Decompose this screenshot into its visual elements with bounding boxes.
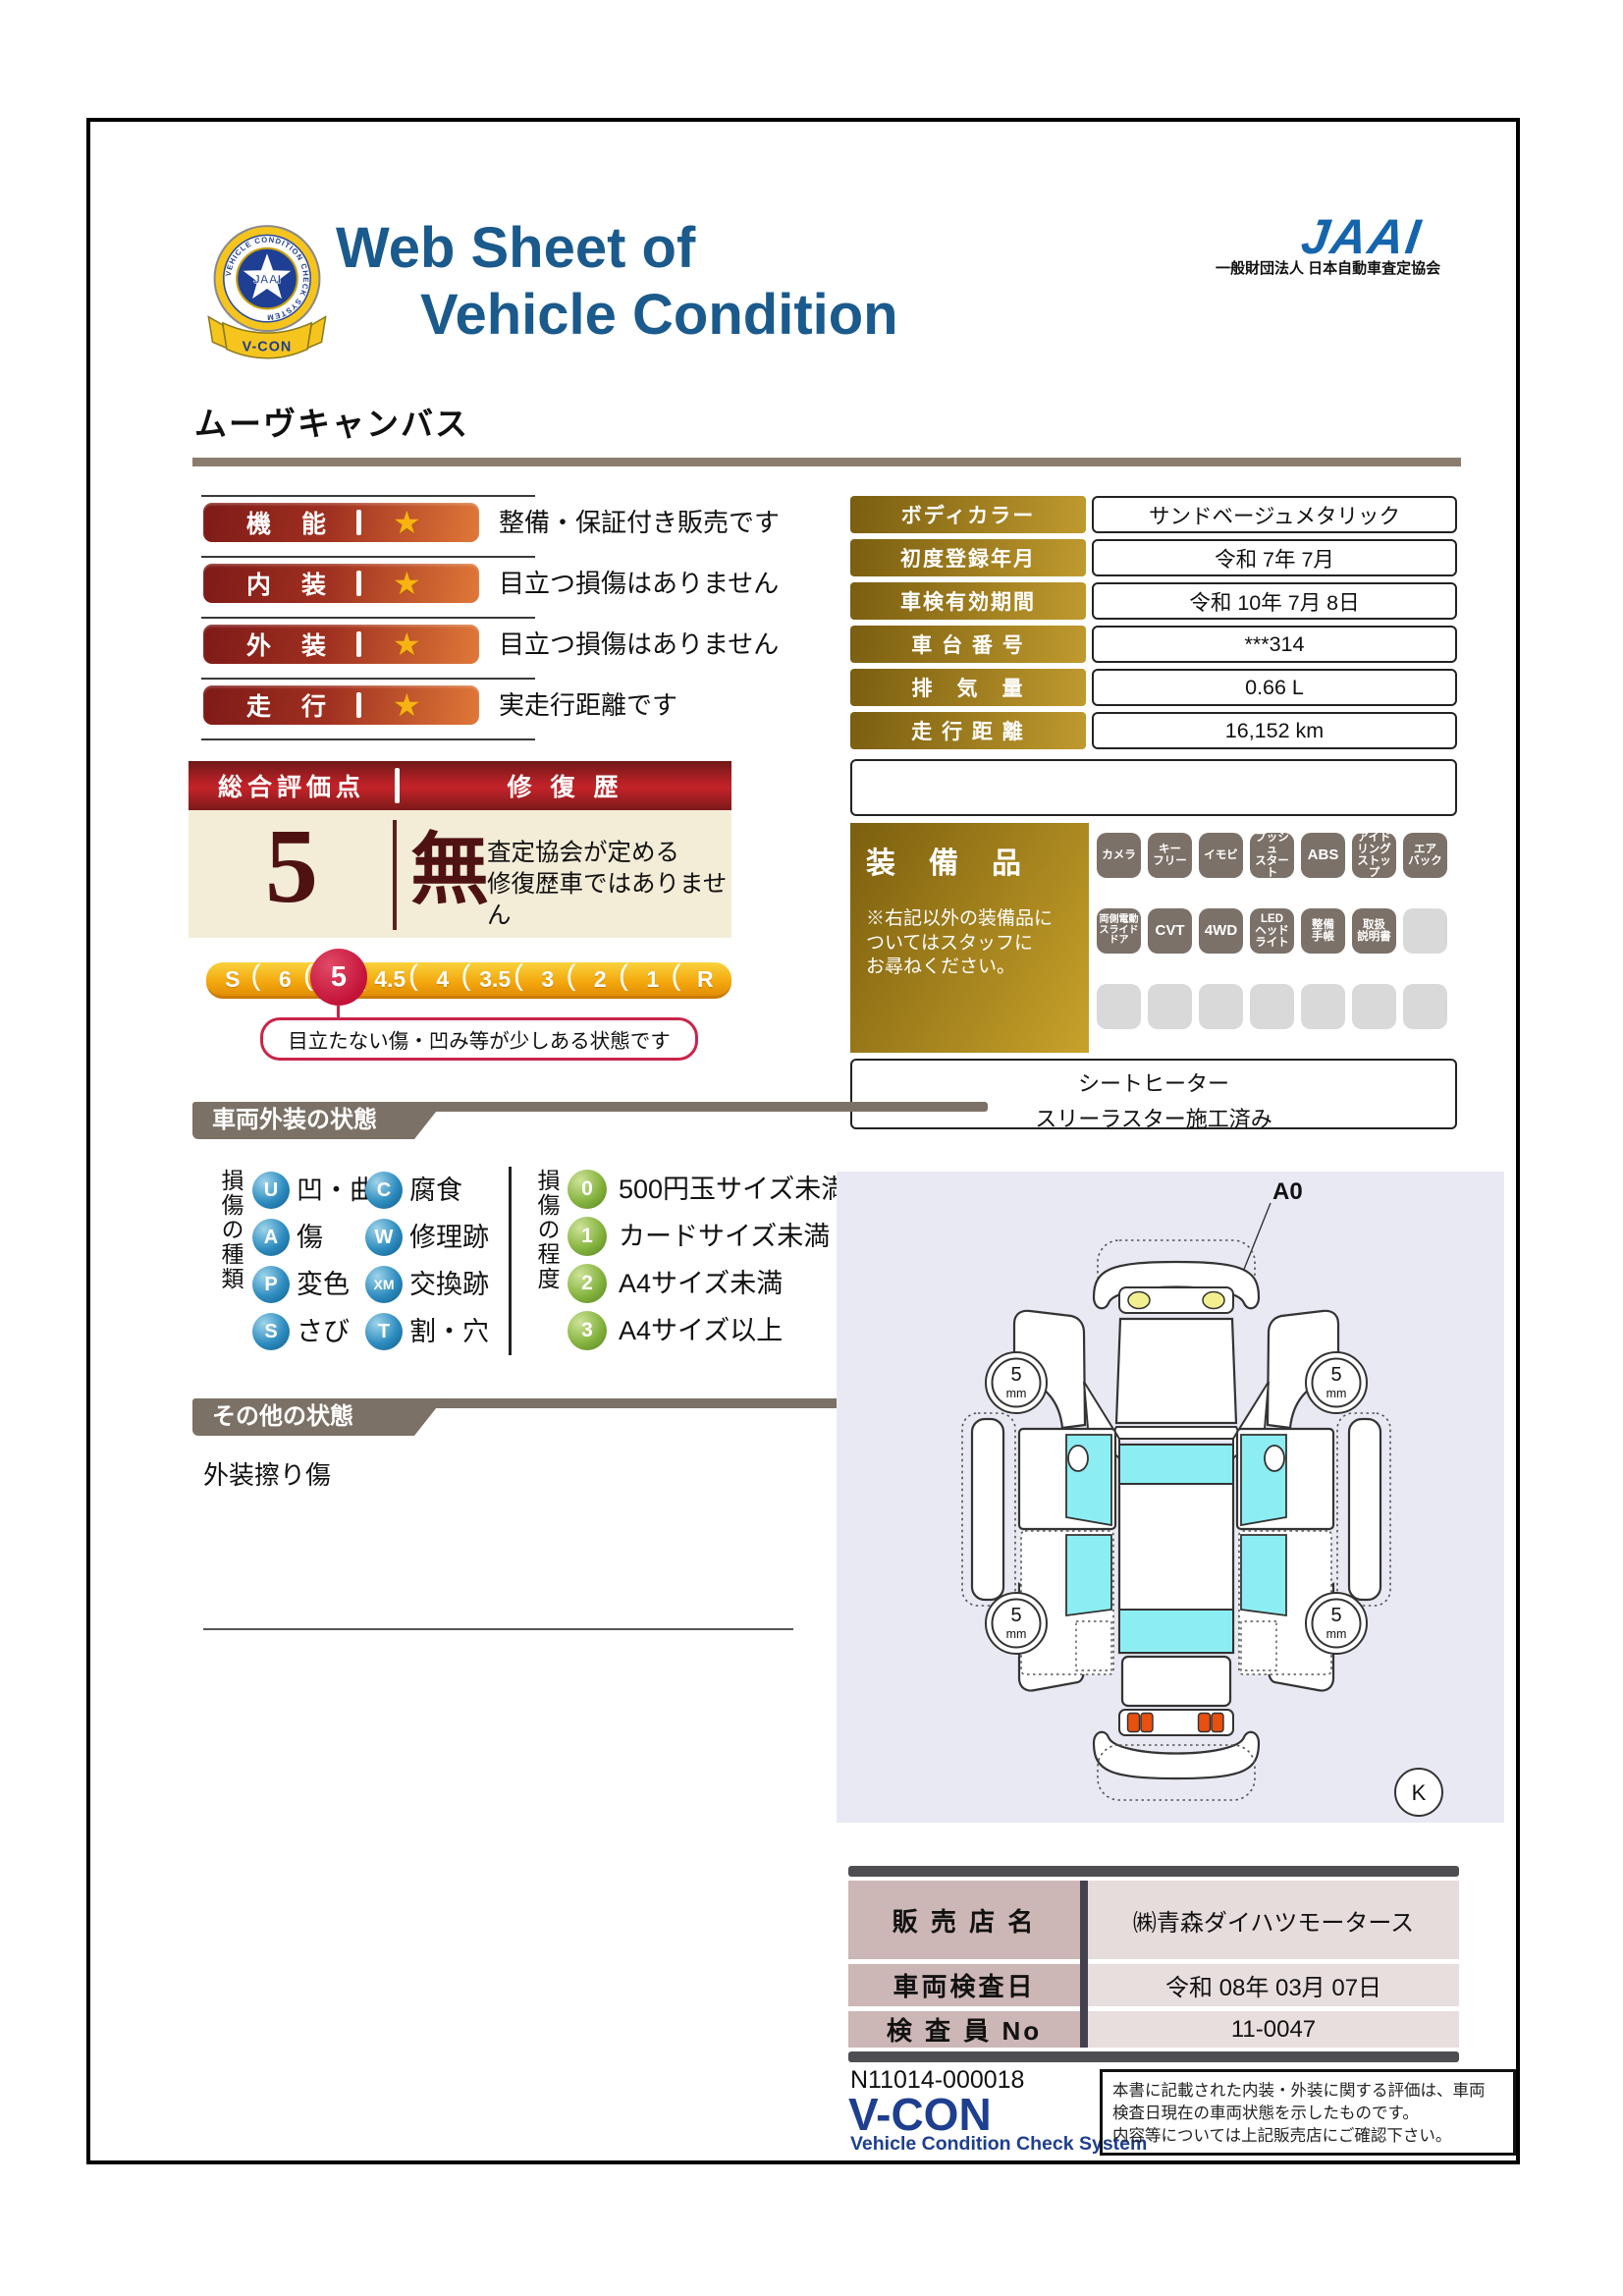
hood-shape bbox=[1116, 1319, 1236, 1423]
wheel-value: 5 bbox=[1330, 1364, 1341, 1386]
overall-header-right: 修 復 歴 bbox=[400, 768, 731, 803]
equipment-badge: 4WD bbox=[1199, 908, 1243, 954]
equipment-badge: 取扱 説明書 bbox=[1352, 908, 1396, 954]
legend-divider bbox=[509, 1167, 512, 1355]
rating-badge-exterior: 外 装 ★ bbox=[203, 625, 479, 664]
damage-kind-code: A bbox=[252, 1219, 290, 1256]
rating-separator bbox=[356, 631, 361, 657]
equipment-badge: LED ヘッド ライト bbox=[1250, 908, 1294, 954]
damage-kind-label: 凹・曲 bbox=[297, 1172, 376, 1209]
rating-separator bbox=[356, 692, 361, 718]
damage-kind-code: S bbox=[252, 1313, 290, 1350]
info-value: 0.66 L bbox=[1092, 669, 1457, 706]
wheel-value: 5 bbox=[1010, 1364, 1021, 1386]
disclaimer-box: 本書に記載された内装・外装に関する評価は、車両 検査日現在の車両状態を示したもの… bbox=[1100, 2069, 1516, 2156]
rating-description: 実走行距離です bbox=[499, 685, 677, 725]
equipment-badge-empty bbox=[1352, 984, 1396, 1029]
wheel-unit: mm bbox=[1006, 1627, 1027, 1641]
taillight bbox=[1199, 1714, 1211, 1732]
info-label: 初度登録年月 bbox=[850, 539, 1086, 576]
wheel-value: 5 bbox=[1010, 1605, 1021, 1626]
damage-kind-label: 傷 bbox=[297, 1219, 323, 1256]
damage-kind-label: 腐食 bbox=[409, 1172, 462, 1209]
repair-note-line2: 修復歴車ではありません bbox=[487, 869, 731, 932]
damage-kind-label: 変色 bbox=[297, 1266, 350, 1303]
dealer-value: 11-0047 bbox=[1088, 2011, 1459, 2048]
equipment-badge: 整備 手帳 bbox=[1301, 908, 1345, 954]
equipment-extra-line: シートヒーター bbox=[852, 1066, 1455, 1098]
info-value: 16,152 km bbox=[1092, 712, 1457, 749]
other-section-title: その他の状態 bbox=[192, 1398, 444, 1436]
corner-mark: K bbox=[1395, 1769, 1442, 1816]
wheel-unit: mm bbox=[1006, 1387, 1027, 1400]
taillight bbox=[1141, 1714, 1153, 1732]
damage-degree-header: 損傷の程度 bbox=[530, 1169, 564, 1361]
damage-kind-code: P bbox=[252, 1266, 290, 1303]
star-icon: ★ bbox=[393, 504, 421, 541]
info-value: 令和 7年 7月 bbox=[1092, 539, 1457, 576]
damage-degree-label: 500円玉サイズ未満 bbox=[619, 1170, 847, 1209]
wheel-unit: mm bbox=[1326, 1627, 1347, 1641]
damage-kind-code: T bbox=[365, 1313, 403, 1350]
headlight-right bbox=[1203, 1292, 1224, 1309]
damage-degree-code: 2 bbox=[568, 1264, 607, 1303]
dealer-value: ㈱青森ダイハツモータース bbox=[1088, 1881, 1459, 1959]
car-damage-diagram: A0 bbox=[837, 1172, 1504, 1823]
sheet-title-line1: Web Sheet of bbox=[336, 220, 695, 277]
exterior-section-title: 車両外装の状態 bbox=[192, 1102, 444, 1139]
diagram-annotation: A0 bbox=[1272, 1178, 1303, 1205]
damage-degree-code: 0 bbox=[568, 1170, 607, 1209]
wheel-rear-left: 5 mm bbox=[986, 1593, 1047, 1654]
equipment-badge: カメラ bbox=[1097, 833, 1141, 878]
equipment-badge-empty bbox=[1403, 984, 1447, 1029]
overall-header-left: 総合評価点 bbox=[189, 768, 395, 803]
rating-description: 整備・保証付き販売です bbox=[499, 503, 780, 542]
info-value: サンドベージュメタリック bbox=[1092, 496, 1457, 533]
damage-degree-code: 1 bbox=[568, 1217, 607, 1256]
rating-description: 目立つ損傷はありません bbox=[499, 625, 779, 664]
equipment-badge: CVT bbox=[1148, 908, 1192, 954]
star-icon: ★ bbox=[393, 565, 421, 602]
damage-kind-code: W bbox=[365, 1219, 403, 1256]
rating-description: 目立つ損傷はありません bbox=[499, 564, 779, 603]
vehicle-name: ムーヴキャンバス bbox=[194, 398, 469, 445]
tailgate-shape bbox=[1122, 1657, 1230, 1706]
equipment-badge: 両側電動 スライド ドア bbox=[1097, 908, 1141, 954]
damage-degree-label: A4サイズ未満 bbox=[619, 1264, 783, 1303]
overall-divider bbox=[393, 820, 397, 930]
damage-kind-label: さび bbox=[297, 1313, 350, 1350]
header-divider bbox=[192, 458, 1461, 466]
taillight bbox=[1128, 1714, 1140, 1732]
overall-header: 総合評価点 修 復 歴 bbox=[189, 761, 731, 810]
equipment-extra-box: シートヒーター スリーラスター施工済み bbox=[850, 1059, 1457, 1129]
info-value: 令和 10年 7月 8日 bbox=[1092, 582, 1457, 620]
taillight bbox=[1212, 1714, 1223, 1732]
dealer-label: 販 売 店 名 bbox=[848, 1881, 1080, 1959]
wheel-front-right: 5 mm bbox=[1306, 1352, 1367, 1413]
equipment-badge-empty bbox=[1403, 908, 1447, 954]
dealer-table-top-bar bbox=[848, 1866, 1459, 1877]
equipment-badge-empty bbox=[1148, 984, 1192, 1029]
equipment-title: 装 備 品 bbox=[866, 839, 1089, 882]
damage-degree-label: カードサイズ未満 bbox=[619, 1217, 830, 1256]
vcon-badge-logo: VEHICLE CONDITION CHECK SYSTEM JAAI V-CO… bbox=[206, 221, 328, 366]
rating-divider bbox=[201, 495, 535, 497]
scale-item: R bbox=[679, 962, 732, 996]
wheel-unit: mm bbox=[1326, 1387, 1347, 1400]
vcon-footer-logo: V-CON bbox=[848, 2092, 992, 2137]
other-condition-note: 外装擦り傷 bbox=[203, 1455, 331, 1492]
star-icon: ★ bbox=[393, 626, 421, 663]
overall-score: 5 bbox=[189, 806, 395, 928]
rating-label: 外 装 bbox=[246, 627, 329, 662]
dealer-value: 令和 08年 03月 07日 bbox=[1088, 1964, 1459, 2006]
damage-degree-code: 3 bbox=[568, 1311, 607, 1350]
equipment-badge-empty bbox=[1301, 984, 1345, 1029]
damage-kind-header: 損傷の種類 bbox=[214, 1169, 247, 1361]
equipment-badge: ABS bbox=[1301, 833, 1345, 878]
info-label: ボディカラー bbox=[850, 496, 1086, 533]
equipment-badge-empty bbox=[1199, 984, 1243, 1029]
repair-history-flag: 無 bbox=[410, 832, 489, 910]
dealer-table-bottom-bar bbox=[848, 2051, 1459, 2062]
headlight-left bbox=[1128, 1292, 1150, 1309]
rating-label: 機 能 bbox=[246, 505, 329, 540]
equipment-note: ※右記以外の装備品に ついてはスタッフに お尋ねください。 bbox=[866, 907, 1089, 980]
info-label: 排 気 量 bbox=[850, 669, 1086, 706]
equipment-panel-label: 装 備 品 ※右記以外の装備品に ついてはスタッフに お尋ねください。 bbox=[850, 823, 1089, 1053]
dealer-table-divider bbox=[1080, 1881, 1088, 2048]
damage-kind-code: XM bbox=[365, 1266, 403, 1303]
other-section-line bbox=[203, 1628, 793, 1630]
rating-divider bbox=[201, 678, 535, 680]
rating-badge-function: 機 能 ★ bbox=[203, 503, 479, 542]
wheel-front-left: 5 mm bbox=[986, 1352, 1047, 1413]
equipment-badge-empty bbox=[1097, 984, 1141, 1029]
jaai-logo-subtitle: 一般財団法人 日本自動車査定協会 bbox=[1216, 257, 1440, 278]
rating-badge-mileage: 走 行 ★ bbox=[203, 685, 479, 725]
vehicle-condition-sheet: VEHICLE CONDITION CHECK SYSTEM JAAI V-CO… bbox=[0, 0, 1623, 2296]
repair-history-note: 査定協会が定める 修復歴車ではありません bbox=[487, 838, 731, 932]
wheel-rear-right: 5 mm bbox=[1306, 1593, 1367, 1654]
damage-kind-code: U bbox=[252, 1172, 290, 1209]
damage-kind-label: 修理跡 bbox=[409, 1219, 489, 1256]
badge-center-text: JAAI bbox=[253, 273, 281, 287]
dealer-label: 検 査 員 No bbox=[848, 2011, 1080, 2048]
rating-separator bbox=[356, 571, 361, 596]
equipment-badge: イモビ bbox=[1199, 833, 1243, 878]
grade-note-bubble: 目立たない傷・凹み等が少しある状態です bbox=[260, 1017, 698, 1061]
overall-body: 5 無 査定協会が定める 修復歴車ではありません bbox=[189, 810, 731, 938]
damage-degree-label: A4サイズ以上 bbox=[619, 1311, 783, 1350]
grade-scale: S 6 4.5 4 3.5 3 2 1 R bbox=[206, 962, 731, 999]
rating-label: 走 行 bbox=[246, 687, 329, 723]
equipment-badge: エア バック bbox=[1403, 833, 1447, 878]
star-icon: ★ bbox=[393, 686, 421, 724]
rating-badge-interior: 内 装 ★ bbox=[203, 564, 479, 603]
rating-divider bbox=[201, 617, 535, 619]
info-label: 車 台 番 号 bbox=[850, 626, 1086, 663]
info-label: 車検有効期間 bbox=[850, 582, 1086, 620]
sheet-title-line2: Vehicle Condition bbox=[420, 287, 898, 344]
wheel-value: 5 bbox=[1330, 1605, 1341, 1626]
badge-ribbon-text: V-CON bbox=[243, 340, 293, 355]
dealer-label: 車両検査日 bbox=[848, 1964, 1080, 2006]
equipment-badge: キー フリー bbox=[1148, 833, 1192, 878]
damage-kind-code: C bbox=[365, 1172, 403, 1209]
grade-pointer-line bbox=[337, 1005, 340, 1018]
equipment-badge: プッシュ スタート bbox=[1250, 833, 1294, 878]
equipment-badge: アイド リング ストップ bbox=[1352, 833, 1396, 878]
rating-divider bbox=[201, 556, 535, 558]
rating-separator bbox=[356, 510, 361, 535]
corner-mark-label: K bbox=[1412, 1780, 1427, 1805]
selected-grade-marker: 5 bbox=[310, 949, 367, 1006]
rating-divider bbox=[201, 738, 535, 740]
repair-note-line1: 査定協会が定める bbox=[487, 838, 731, 869]
damage-kind-label: 交換跡 bbox=[409, 1266, 489, 1303]
info-empty-box bbox=[850, 759, 1457, 816]
damage-kind-label: 割・穴 bbox=[409, 1313, 489, 1350]
info-value: ***314 bbox=[1092, 626, 1457, 663]
info-label: 走 行 距 離 bbox=[850, 712, 1086, 749]
equipment-badge-empty bbox=[1250, 984, 1294, 1029]
rating-label: 内 装 bbox=[246, 566, 329, 601]
